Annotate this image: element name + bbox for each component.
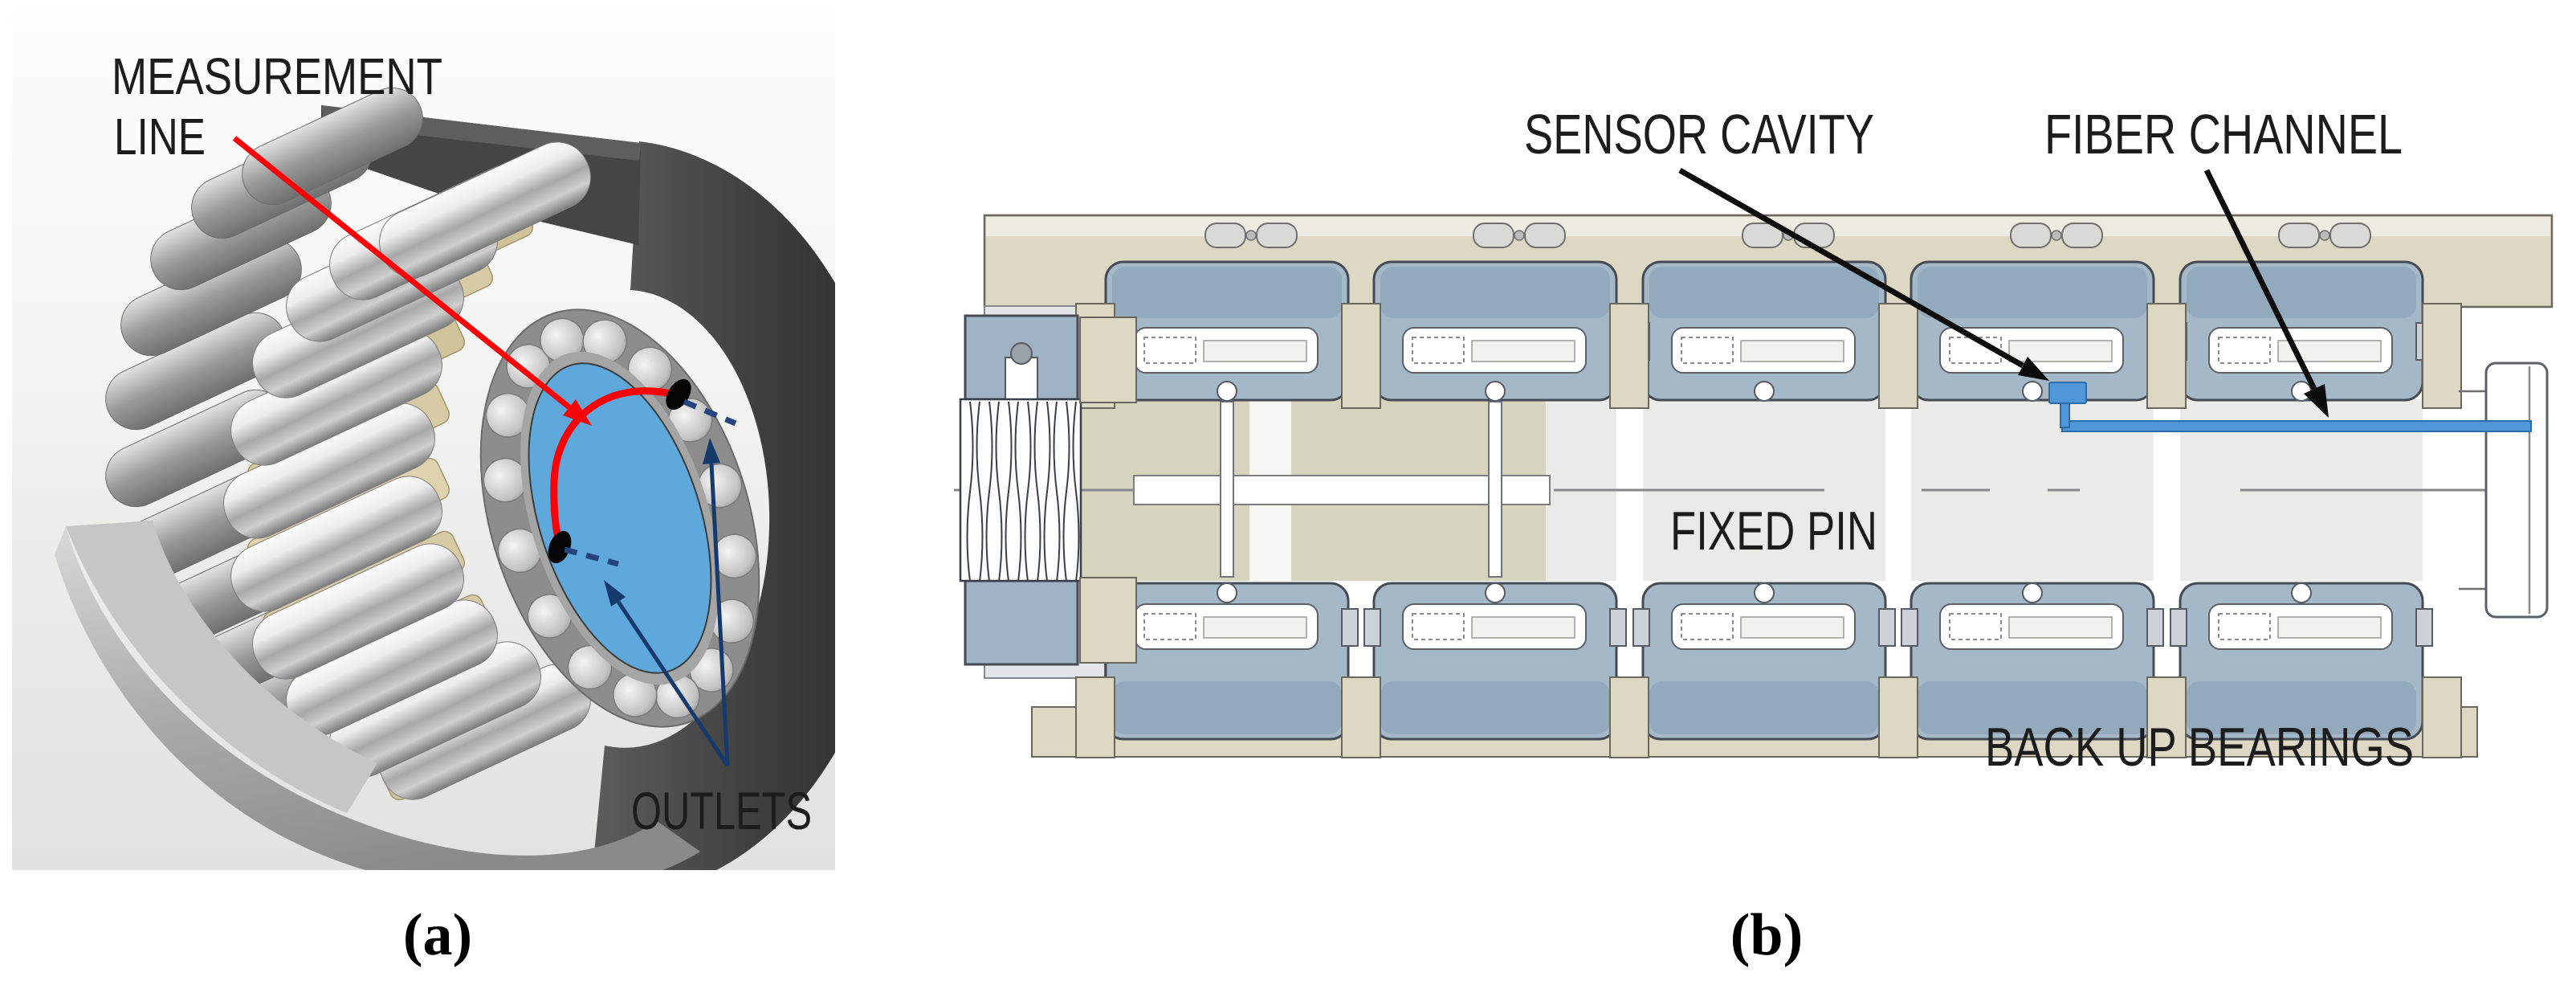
- fiber-channel-label: FIBER CHANNEL: [2044, 103, 2403, 165]
- sensor-cavity-label: SENSOR CAVITY: [1524, 103, 1874, 165]
- sensor-cavity-block: [2049, 382, 2086, 403]
- panel-b-cross-section: SENSOR CAVITY FIBER CHANNEL FIXED PIN BA…: [948, 80, 2562, 787]
- panel-a-bearing-render: MEASUREMENT LINE OUTLETS: [12, 12, 835, 870]
- measurement-line-label-1: MEASUREMENT: [112, 47, 442, 105]
- fiber-line: [2062, 421, 2531, 431]
- upper-backup-bearings: [1096, 262, 2432, 401]
- outlets-label: OUTLETS: [631, 781, 812, 840]
- pin-rod-slot: [1134, 476, 1550, 505]
- figure-canvas: MEASUREMENT LINE OUTLETS: [0, 0, 2576, 997]
- back-up-bearings-label: BACK UP BEARINGS: [1985, 717, 2414, 778]
- bearing-3d-drawing: MEASUREMENT LINE OUTLETS: [12, 12, 835, 870]
- fixed-pin-label: FIXED PIN: [1670, 501, 1877, 562]
- measurement-line-label-2: LINE: [114, 108, 206, 165]
- caption-a: (a): [333, 901, 542, 970]
- fiber-stem: [2060, 400, 2069, 427]
- lower-backup-bearings: [1096, 583, 2432, 739]
- caption-b: (b): [1662, 901, 1871, 970]
